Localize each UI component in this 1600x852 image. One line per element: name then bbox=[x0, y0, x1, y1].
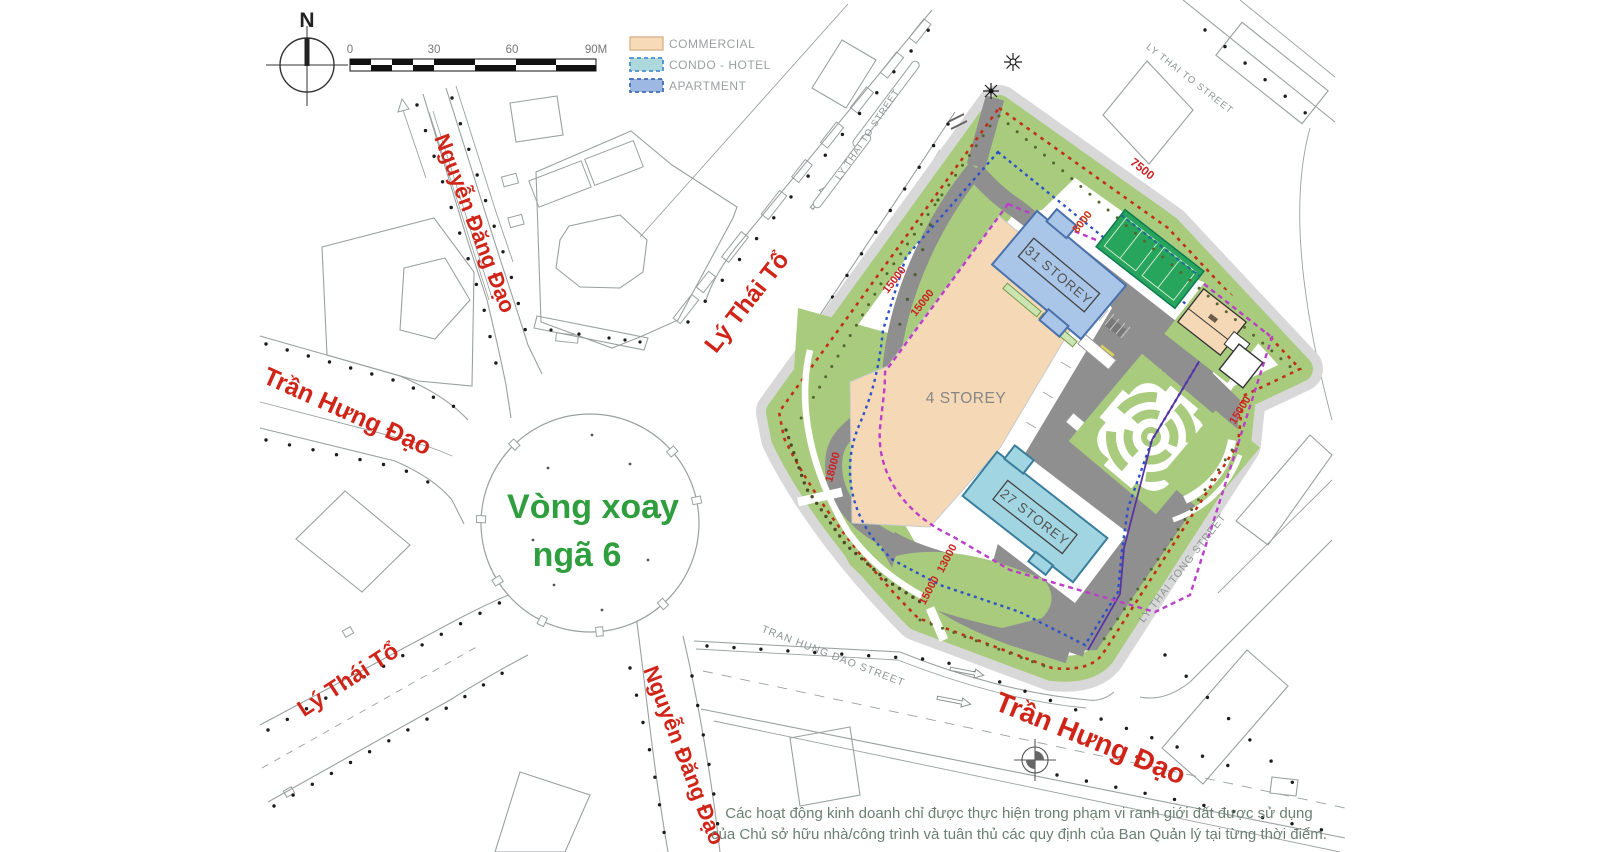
svg-text:4 STOREY: 4 STOREY bbox=[926, 390, 1006, 407]
svg-text:Các hoạt động kinh doanh chỉ đ: Các hoạt động kinh doanh chỉ được thực h… bbox=[725, 805, 1313, 822]
svg-text:N: N bbox=[299, 9, 314, 32]
svg-text:Vòng xoay: Vòng xoay bbox=[507, 488, 679, 526]
svg-text:30: 30 bbox=[428, 44, 441, 56]
svg-text:CONDO - HOTEL: CONDO - HOTEL bbox=[669, 58, 771, 72]
svg-text:APARTMENT: APARTMENT bbox=[669, 79, 747, 93]
svg-text:ngã 6: ngã 6 bbox=[533, 536, 622, 574]
svg-text:COMMERCIAL: COMMERCIAL bbox=[669, 37, 755, 51]
svg-text:của Chủ sở hữu nhà/công trình: của Chủ sở hữu nhà/công trình và tuân th… bbox=[711, 826, 1327, 843]
svg-text:90M: 90M bbox=[585, 44, 607, 56]
svg-text:60: 60 bbox=[506, 44, 519, 56]
svg-text:0: 0 bbox=[347, 44, 353, 56]
